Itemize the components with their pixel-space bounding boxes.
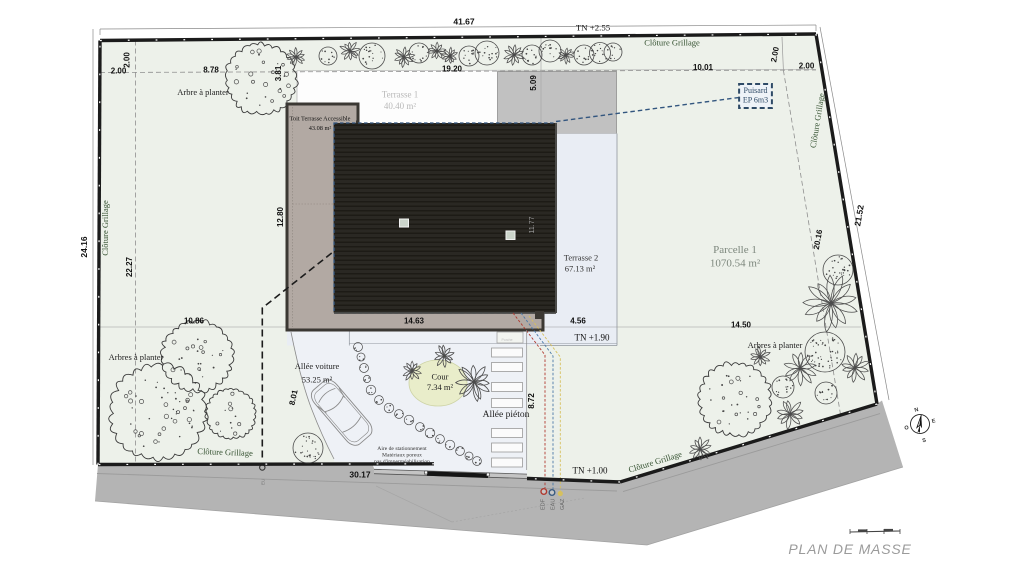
svg-text:PLAN DE MASSE: PLAN DE MASSE (788, 541, 911, 557)
svg-text:7.34 m²: 7.34 m² (427, 382, 454, 392)
svg-text:41.67: 41.67 (453, 17, 475, 27)
svg-text:Terrasse 1: Terrasse 1 (382, 90, 419, 100)
svg-text:Toit Terrasse Accessible: Toit Terrasse Accessible (290, 116, 351, 123)
svg-text:1070.54 m²: 1070.54 m² (710, 258, 761, 270)
svg-text:Parcelle 1: Parcelle 1 (713, 244, 757, 256)
svg-text:pas d'imperméabilisation: pas d'imperméabilisation (374, 459, 430, 465)
svg-text:Cour: Cour (432, 372, 449, 382)
svg-text:14.63: 14.63 (404, 317, 425, 326)
svg-text:EP 6m3: EP 6m3 (743, 96, 768, 105)
svg-text:Allée voiture: Allée voiture (295, 361, 340, 371)
svg-text:8.72: 8.72 (527, 393, 536, 409)
svg-text:10.86: 10.86 (184, 317, 205, 326)
svg-text:GAZ: GAZ (560, 498, 566, 510)
svg-text:Clôture Grillage: Clôture Grillage (644, 38, 700, 48)
svg-text:43.08 m²: 43.08 m² (309, 125, 332, 132)
svg-text:EAU: EAU (551, 499, 557, 510)
svg-text:11.77: 11.77 (529, 216, 536, 233)
svg-text:EDF: EDF (541, 498, 547, 510)
svg-text:TN +1.90: TN +1.90 (574, 333, 610, 343)
svg-text:53.25 m²: 53.25 m² (302, 375, 333, 385)
svg-text:40.40 m²: 40.40 m² (384, 101, 417, 111)
svg-text:22.27: 22.27 (125, 256, 134, 277)
svg-text:4.56: 4.56 (570, 317, 586, 326)
svg-text:EU: EU (261, 479, 266, 485)
svg-text:30.17: 30.17 (349, 470, 371, 480)
svg-text:TN +1.00: TN +1.00 (572, 465, 608, 475)
svg-text:2.00: 2.00 (799, 62, 815, 71)
svg-text:3.81: 3.81 (274, 65, 283, 81)
svg-text:TN +2.55: TN +2.55 (576, 23, 611, 33)
svg-text:10.01: 10.01 (693, 63, 714, 72)
svg-text:12.80: 12.80 (276, 206, 285, 227)
svg-text:Clôture Grillage: Clôture Grillage (197, 446, 253, 458)
svg-text:5.09: 5.09 (529, 75, 538, 91)
svg-text:19.20: 19.20 (442, 65, 463, 74)
svg-text:67.13 m²: 67.13 m² (565, 264, 596, 274)
svg-text:2.00: 2.00 (123, 52, 132, 68)
svg-text:Porche: Porche (501, 338, 512, 342)
svg-text:24.16: 24.16 (79, 236, 89, 258)
svg-text:Arbre à planter: Arbre à planter (177, 87, 229, 97)
svg-text:Terrasse 2: Terrasse 2 (564, 253, 599, 263)
svg-text:Matériaux poreux: Matériaux poreux (382, 453, 422, 459)
svg-text:Arbres à planter: Arbres à planter (109, 352, 164, 362)
svg-text:Clôture Grillage: Clôture Grillage (100, 200, 110, 256)
svg-text:8.78: 8.78 (203, 66, 219, 75)
svg-text:Puisard: Puisard (744, 86, 768, 95)
svg-text:Allée piéton: Allée piéton (483, 410, 530, 420)
svg-text:Arbres à planter: Arbres à planter (748, 340, 803, 350)
svg-text:14.50: 14.50 (731, 321, 752, 330)
svg-text:Aire de stationnement: Aire de stationnement (377, 446, 427, 452)
